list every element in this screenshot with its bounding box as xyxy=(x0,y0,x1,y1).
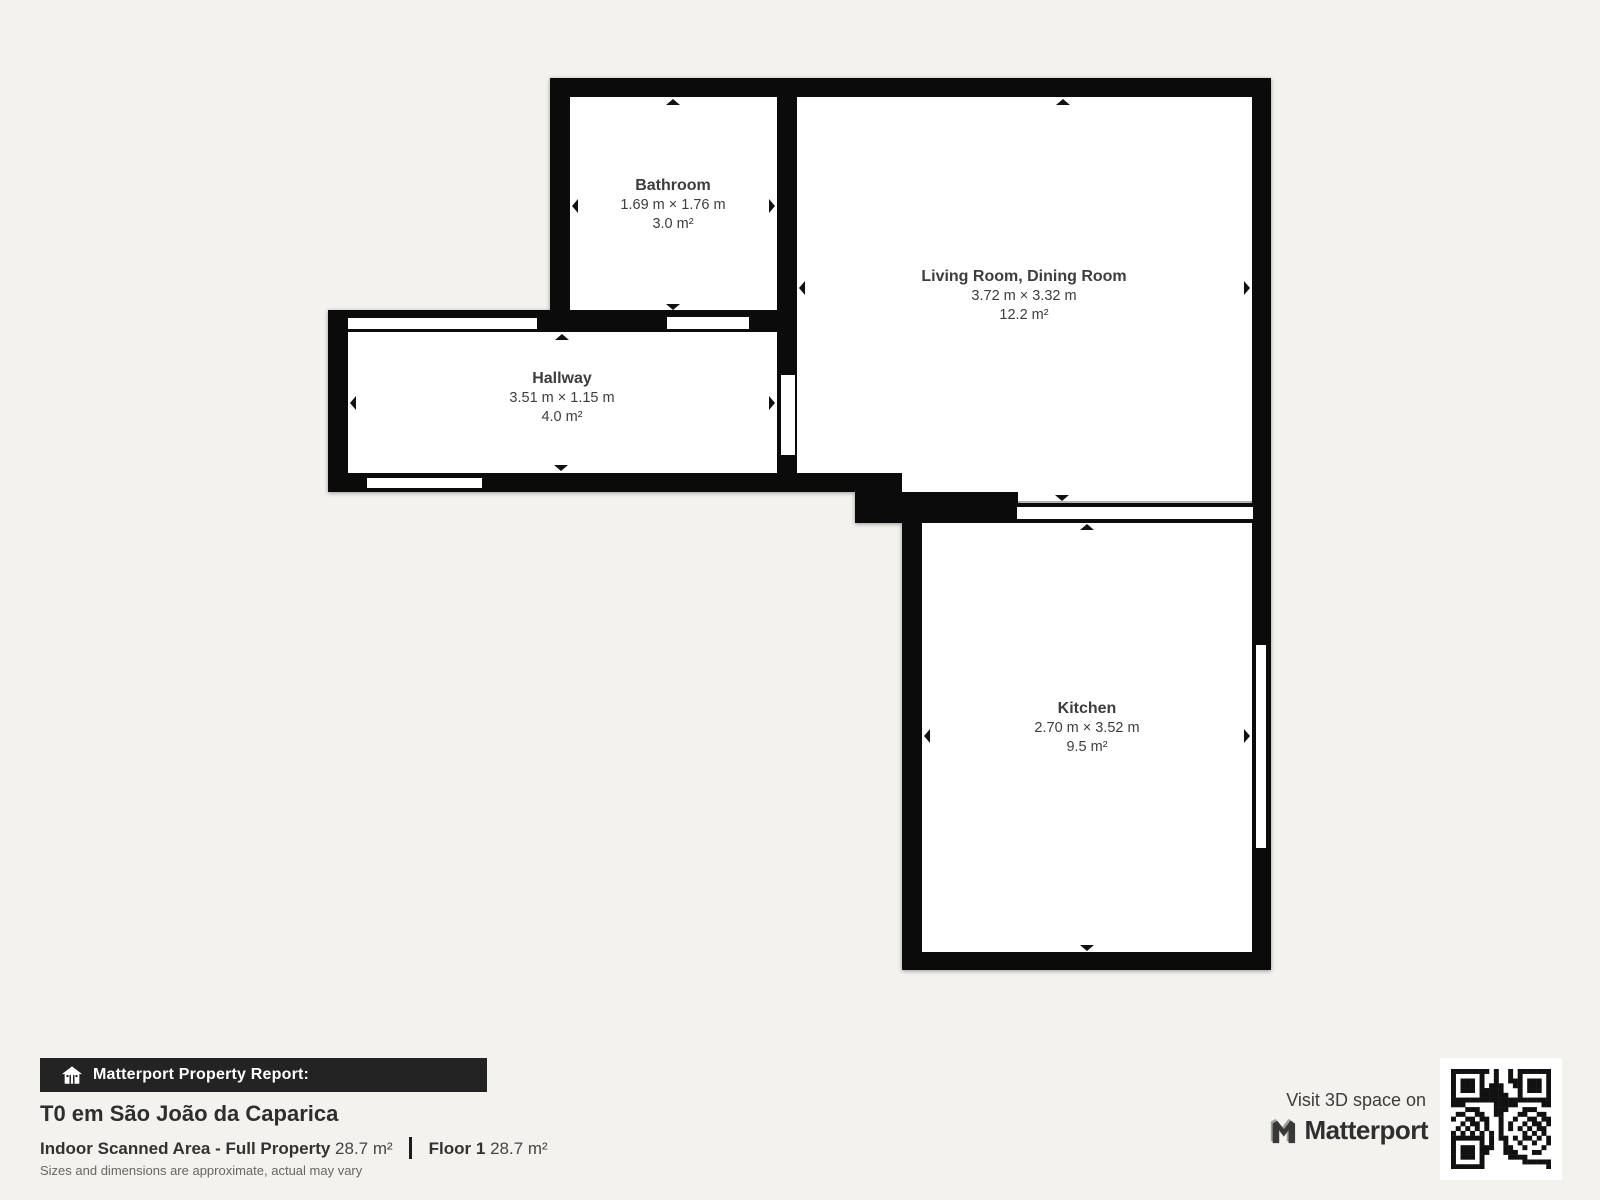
hallway-label: Hallway 3.51 m × 1.15 m 4.0 m² xyxy=(412,368,712,427)
room-area: 3.0 m² xyxy=(523,215,823,234)
qr-pattern xyxy=(1451,1069,1551,1169)
room-dimensions: 3.51 m × 1.15 m xyxy=(412,389,712,408)
scanned-area-label: Indoor Scanned Area - Full Property xyxy=(40,1139,330,1158)
wall-kitchen-left xyxy=(902,503,922,970)
disclaimer-text: Sizes and dimensions are approximate, ac… xyxy=(40,1163,362,1178)
floor-value: 28.7 m² xyxy=(490,1139,548,1158)
room-dimensions: 2.70 m × 3.52 m xyxy=(937,719,1237,738)
living-kitchen-opening xyxy=(1017,507,1253,519)
hallway-arrow-right xyxy=(769,396,775,410)
vertical-divider xyxy=(409,1137,412,1159)
living-arrow-up xyxy=(1056,99,1070,105)
wall-top xyxy=(550,78,1270,97)
kitchen-arrow-up xyxy=(1080,524,1094,530)
kitchen-arrow-right xyxy=(1244,729,1250,743)
room-name: Bathroom xyxy=(523,175,823,196)
kitchen-arrow-left xyxy=(924,729,930,743)
hallway-arrow-up xyxy=(555,334,569,340)
room-area: 12.2 m² xyxy=(874,306,1174,325)
living-arrow-right xyxy=(1244,281,1250,295)
room-area: 4.0 m² xyxy=(412,408,712,427)
kitchen-arrow-down xyxy=(1080,945,1094,951)
bathroom-arrow-down xyxy=(666,304,680,310)
bathroom-door xyxy=(667,317,749,329)
report-header-bar: Matterport Property Report: xyxy=(40,1058,487,1092)
room-area: 9.5 m² xyxy=(937,738,1237,757)
matterport-wordmark: Matterport xyxy=(1304,1115,1428,1146)
area-info-line: Indoor Scanned Area - Full Property 28.7… xyxy=(40,1137,548,1159)
bathroom-arrow-up xyxy=(666,99,680,105)
hallway-bottom-window xyxy=(367,478,482,488)
kitchen-label: Kitchen 2.70 m × 3.52 m 9.5 m² xyxy=(937,698,1237,757)
matterport-m-icon xyxy=(1268,1116,1296,1146)
matterport-logo: Matterport xyxy=(1128,1115,1428,1146)
visit-3d-text: Visit 3D space on xyxy=(1128,1090,1426,1111)
living-room-label: Living Room, Dining Room 3.72 m × 3.32 m… xyxy=(874,266,1174,325)
room-name: Living Room, Dining Room xyxy=(874,266,1174,287)
living-arrow-down xyxy=(1055,495,1069,501)
living-room-door xyxy=(781,375,795,455)
room-dimensions: 1.69 m × 1.76 m xyxy=(523,196,823,215)
floor-label: Floor 1 xyxy=(429,1139,486,1158)
room-name: Hallway xyxy=(412,368,712,389)
room-name: Kitchen xyxy=(937,698,1237,719)
room-dimensions: 3.72 m × 3.32 m xyxy=(874,287,1174,306)
kitchen-window xyxy=(1256,645,1266,848)
hallway-top-window xyxy=(348,318,537,329)
property-title: T0 em São João da Caparica xyxy=(40,1101,338,1127)
floor-plan: Bathroom 1.69 m × 1.76 m 3.0 m² Living R… xyxy=(0,0,1600,1000)
report-bar-label: Matterport Property Report: xyxy=(93,1066,309,1084)
hallway-arrow-left xyxy=(350,396,356,410)
wall-step-corner xyxy=(855,492,1018,523)
house-icon xyxy=(61,1066,83,1085)
wall-hallway-left xyxy=(328,310,348,492)
promo-block: Visit 3D space on Matterport xyxy=(1128,1090,1428,1146)
living-arrow-left xyxy=(799,281,805,295)
wall-kitchen-bottom xyxy=(902,952,1271,970)
bathroom-label: Bathroom 1.69 m × 1.76 m 3.0 m² xyxy=(523,175,823,234)
hallway-arrow-down xyxy=(554,465,568,471)
qr-code xyxy=(1440,1058,1562,1180)
scanned-area-value: 28.7 m² xyxy=(335,1139,393,1158)
